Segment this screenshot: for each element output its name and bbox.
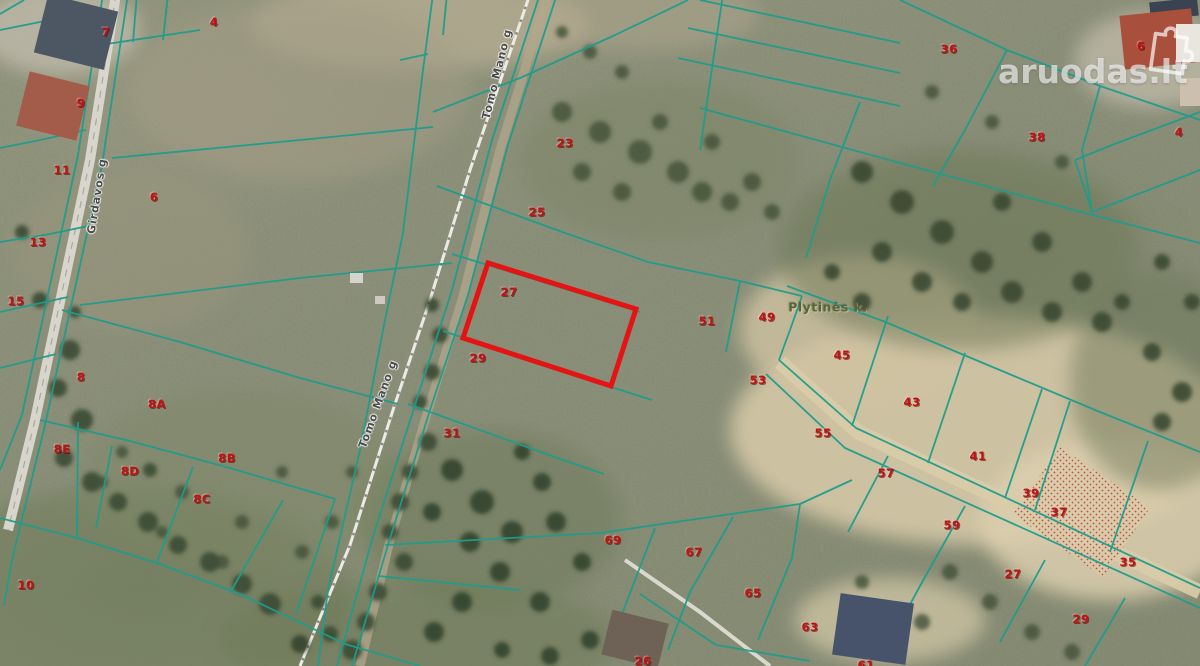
- aerial-map-layer: [0, 0, 1200, 666]
- building-light: [1180, 78, 1200, 106]
- shed: [350, 273, 363, 283]
- map-canvas[interactable]: 479116131588A8E8B8D8C1023252729316967656…: [0, 0, 1200, 666]
- shed: [375, 296, 385, 304]
- building-roof-slate: [832, 593, 914, 665]
- building-white: [1176, 24, 1200, 62]
